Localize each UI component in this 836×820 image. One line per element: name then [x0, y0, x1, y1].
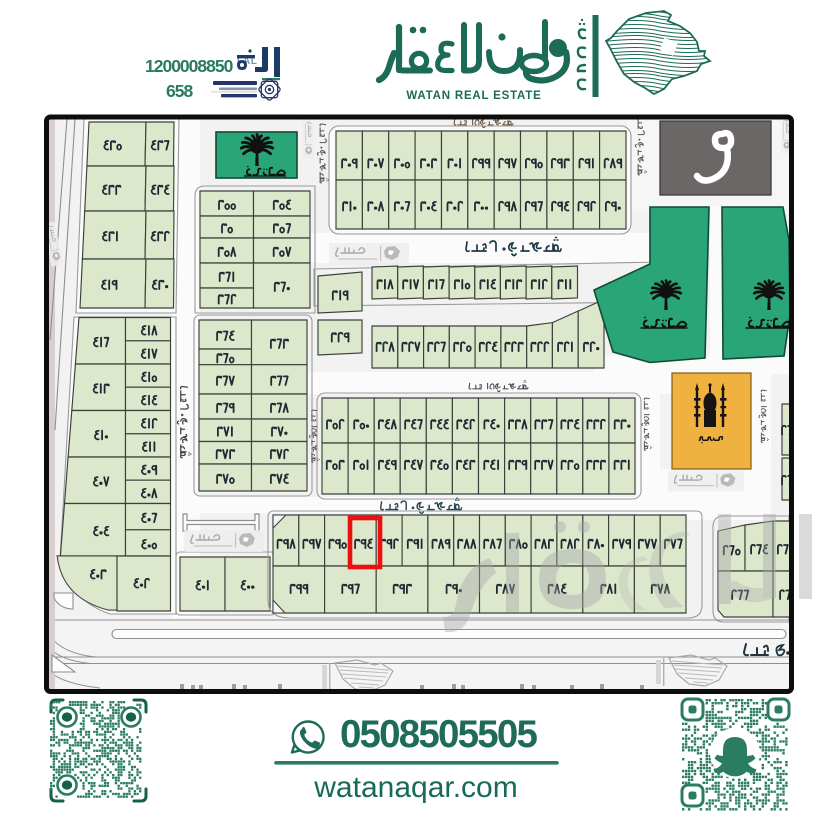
svg-text:WATAN REAL ESTATE: WATAN REAL ESTATE — [406, 90, 541, 102]
svg-text:658: 658 — [166, 81, 193, 101]
svg-text:1200008850: 1200008850 — [145, 56, 234, 76]
svg-text:0508505505: 0508505505 — [340, 713, 538, 756]
svg-text:watanaqar.com: watanaqar.com — [313, 771, 517, 804]
